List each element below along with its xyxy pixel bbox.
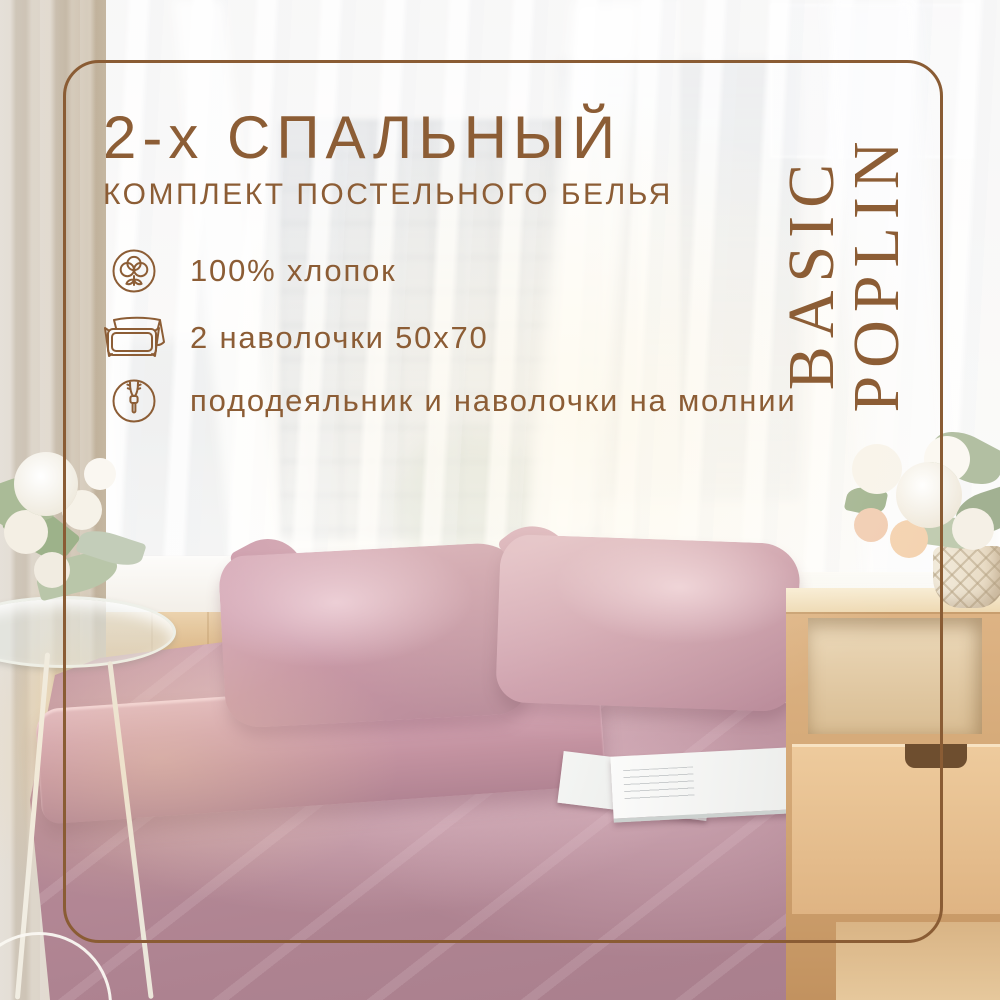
page-title: 2-х СПАЛЬНЫЙ — [103, 108, 621, 168]
zipper-icon — [102, 377, 166, 425]
product-poster: 2-х СПАЛЬНЫЙ КОМПЛЕКТ ПОСТЕЛЬНОГО БЕЛЬЯ … — [0, 0, 1000, 1000]
brand-line-basic: BASIC — [780, 103, 845, 443]
feature-label: 2 наволочки 50х70 — [190, 320, 489, 356]
brand-line-poplin: POPLIN — [845, 103, 910, 443]
brand-vertical-text: BASIC POPLIN — [780, 103, 910, 443]
feature-label: пододеяльник и наволочки на молнии — [190, 383, 796, 419]
feature-row-pillowcases: 2 наволочки 50х70 — [102, 312, 489, 364]
feature-row-cotton: 100% хлопок — [102, 245, 396, 297]
feature-row-zipper: пододеяльник и наволочки на молнии — [102, 375, 796, 427]
cotton-icon — [102, 247, 166, 295]
pillows-icon — [102, 315, 166, 361]
flower-pot — [933, 546, 1000, 608]
page-subtitle: КОМПЛЕКТ ПОСТЕЛЬНОГО БЕЛЬЯ — [103, 180, 673, 210]
feature-label: 100% хлопок — [190, 253, 396, 289]
